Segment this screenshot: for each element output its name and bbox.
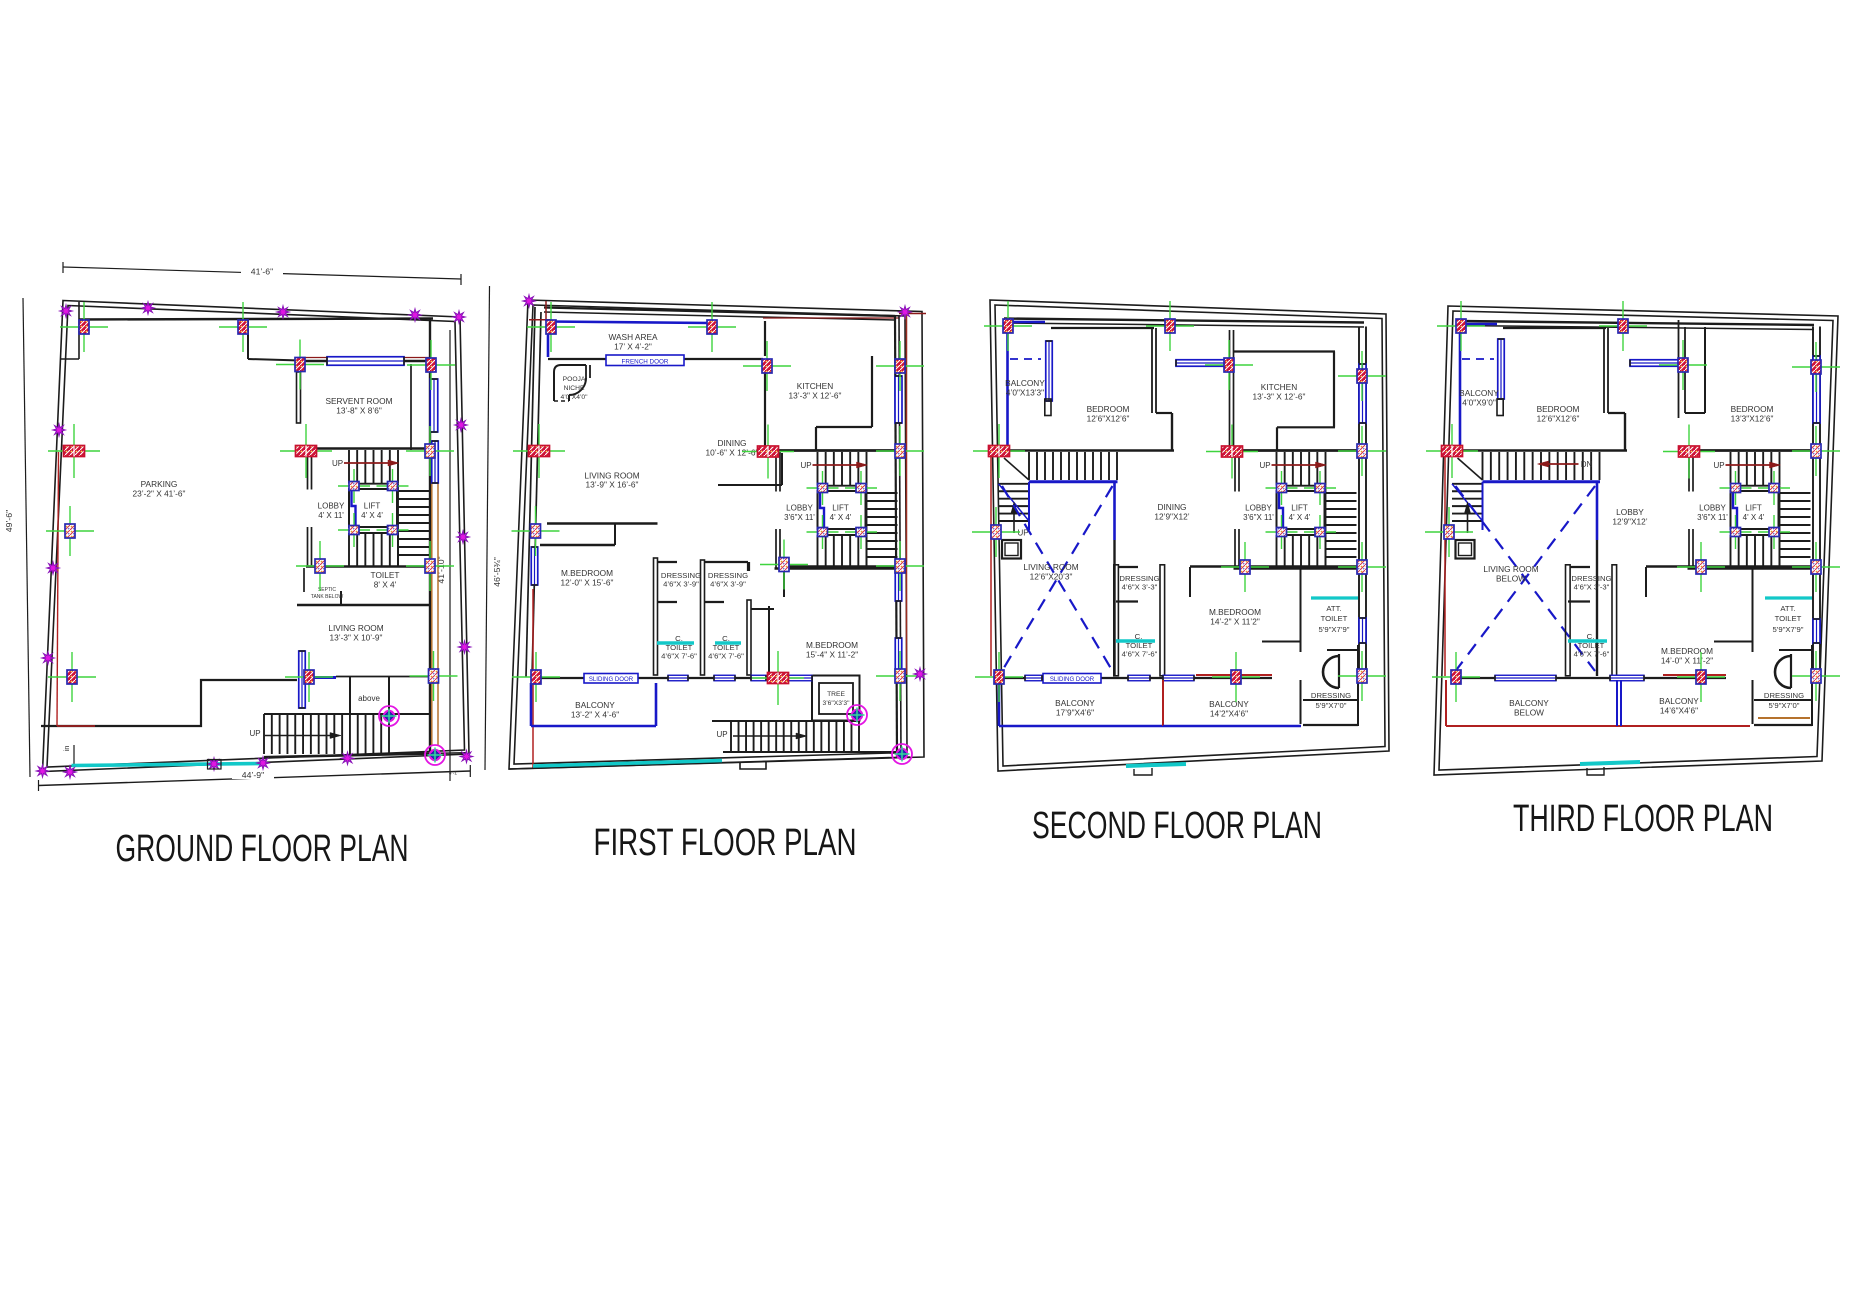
svg-text:UP: UP [1017,529,1028,538]
svg-text:BALCONY: BALCONY [1459,388,1499,398]
svg-text:4’6"X 7’-6": 4’6"X 7’-6" [1122,650,1158,659]
svg-text:KITCHEN: KITCHEN [1261,382,1297,392]
svg-text:4’6"X 7’-6": 4’6"X 7’-6" [661,652,697,661]
svg-text:GROUND FLOOR PLAN: GROUND FLOOR PLAN [116,828,409,870]
svg-text:NICHE: NICHE [564,385,585,392]
svg-text:UP: UP [249,729,260,738]
svg-text:KITCHEN: KITCHEN [797,381,833,391]
svg-text:4' X 4': 4' X 4' [830,513,852,522]
svg-text:12’6"X12’6": 12’6"X12’6" [1537,414,1580,424]
svg-text:DRESSING: DRESSING [1311,691,1351,700]
svg-text:46’-5¾": 46’-5¾" [492,557,502,587]
svg-text:PARKING: PARKING [141,479,178,489]
svg-text:13’-3" X 10’-9": 13’-3" X 10’-9" [330,633,383,643]
svg-text:BEDROOM: BEDROOM [1087,404,1130,414]
svg-text:C.: C. [722,634,730,643]
svg-text:13’-8" X 8’6": 13’-8" X 8’6" [336,406,382,416]
svg-text:C.: C. [675,634,683,643]
svg-text:BALCONY: BALCONY [1055,698,1095,708]
svg-text:5’9"X7’0": 5’9"X7’0" [1315,701,1346,710]
svg-text:12’9"X12’: 12’9"X12’ [1612,517,1647,527]
svg-text:SLIDING DOOR: SLIDING DOOR [1050,676,1095,683]
svg-text:BELOW: BELOW [1496,574,1526,584]
svg-text:3'6"X 11': 3'6"X 11' [784,513,815,522]
svg-text:4’0"X9’0": 4’0"X9’0" [1462,398,1496,408]
svg-text:13’3"X12’6": 13’3"X12’6" [1731,414,1774,424]
svg-text:M.BEDROOM: M.BEDROOM [561,568,613,578]
svg-text:4’6"X 7’-6": 4’6"X 7’-6" [1574,650,1610,659]
svg-text:ATT.: ATT. [1780,604,1795,613]
svg-text:14’-0" X 11’-2": 14’-0" X 11’-2" [1661,656,1713,666]
svg-text:15’-4" X 11’-2": 15’-4" X 11’-2" [806,650,858,660]
svg-text:TOILET: TOILET [371,570,400,580]
svg-text:3'6"X 11': 3'6"X 11' [1697,513,1728,522]
svg-text:5’9"X7’9": 5’9"X7’9" [1318,625,1349,634]
svg-text:UP: UP [332,459,343,468]
svg-text:4’-1: 4’-1 [449,771,457,777]
svg-text:POOJA: POOJA [563,376,586,383]
svg-text:LIVING ROOM: LIVING ROOM [1023,562,1078,572]
svg-text:10’-6" X 12’-6": 10’-6" X 12’-6" [706,448,759,458]
svg-text:12’6"X12’6": 12’6"X12’6" [1087,414,1130,424]
svg-text:13’-3" X 12’-6": 13’-3" X 12’-6" [1253,392,1306,402]
svg-text:DRESSING: DRESSING [1764,691,1804,700]
svg-text:14’-2" X 11’2": 14’-2" X 11’2" [1210,617,1260,627]
svg-text:C.: C. [1135,632,1143,641]
svg-text:13’-9" X 16’-6": 13’-9" X 16’-6" [586,480,639,490]
svg-text:THIRD FLOOR PLAN: THIRD FLOOR PLAN [1513,798,1773,840]
svg-text:DINING: DINING [1157,502,1186,512]
svg-text:SEPTIC: SEPTIC [318,587,336,593]
svg-text:SECOND FLOOR PLAN: SECOND FLOOR PLAN [1032,805,1322,847]
svg-text:LIVING ROOM: LIVING ROOM [1483,564,1538,574]
svg-text:LOBBY: LOBBY [318,502,345,511]
svg-text:UP: UP [800,461,811,470]
svg-text:4’6"X 3’-3": 4’6"X 3’-3" [1122,583,1158,592]
svg-text:TREE: TREE [827,691,845,698]
svg-text:4' X 11': 4' X 11' [318,511,344,520]
svg-text:4’6"X 3’-9": 4’6"X 3’-9" [710,580,746,589]
svg-text:14’6"X4’6": 14’6"X4’6" [1660,706,1698,716]
svg-text:8' X 4': 8' X 4' [374,580,397,590]
svg-text:14’2"X4’6": 14’2"X4’6" [1210,709,1248,719]
svg-text:4’0"X4’0": 4’0"X4’0" [560,394,588,401]
svg-text:LIFT: LIFT [832,504,849,513]
svg-text:5’9"X7’0": 5’9"X7’0" [1768,701,1799,710]
svg-text:ATT.: ATT. [1326,604,1341,613]
svg-text:17’9"X4’6": 17’9"X4’6" [1056,708,1094,718]
svg-text:BALCONY: BALCONY [1005,378,1045,388]
svg-text:LIFT: LIFT [364,502,381,511]
svg-text:3'6"X 11': 3'6"X 11' [1243,513,1274,522]
svg-text:LOBBY: LOBBY [786,504,813,513]
svg-text:4’6"X 7’-6": 4’6"X 7’-6" [708,652,744,661]
svg-text:LOBBY: LOBBY [1616,507,1644,517]
svg-text:in: in [62,746,71,752]
svg-text:12’6"X20’3": 12’6"X20’3" [1030,572,1073,582]
svg-text:BEDROOM: BEDROOM [1731,404,1774,414]
svg-text:17’ X 4’-2": 17’ X 4’-2" [614,342,652,352]
svg-text:LOBBY: LOBBY [1699,504,1726,513]
svg-text:5’9"X7’9": 5’9"X7’9" [1772,625,1803,634]
svg-text:12’9"X12’: 12’9"X12’ [1154,512,1189,522]
svg-text:above: above [358,694,380,703]
svg-text:23’-2" X 41’-6": 23’-2" X 41’-6" [133,489,186,499]
svg-text:BELOW: BELOW [1514,708,1544,718]
svg-text:BEDROOM: BEDROOM [1537,404,1580,414]
svg-text:LOBBY: LOBBY [1245,504,1272,513]
svg-text:WASH AREA: WASH AREA [608,332,657,342]
svg-text:BALCONY: BALCONY [575,700,615,710]
svg-text:BALCONY: BALCONY [1509,698,1549,708]
svg-text:FIRST FLOOR PLAN: FIRST FLOOR PLAN [594,822,857,864]
svg-text:TOILET: TOILET [1321,614,1348,623]
svg-text:BALCONY: BALCONY [1209,699,1249,709]
svg-text:13’-2" X 4’-6": 13’-2" X 4’-6" [571,710,619,720]
svg-text:TOILET: TOILET [1775,614,1802,623]
svg-text:4' X 4': 4' X 4' [1289,513,1311,522]
svg-text:DINING: DINING [717,438,746,448]
svg-text:SERVENT ROOM: SERVENT ROOM [325,396,392,406]
svg-text:44’-9": 44’-9" [242,770,264,780]
svg-text:13’-3" X 12’-6": 13’-3" X 12’-6" [789,391,842,401]
svg-text:4' X 4': 4' X 4' [361,511,383,520]
svg-text:12’-0" X 15’-6": 12’-0" X 15’-6" [561,578,614,588]
svg-text:C.: C. [1587,632,1595,641]
svg-text:UP: UP [1713,461,1724,470]
svg-text:LIFT: LIFT [1291,504,1308,513]
svg-text:LIVING ROOM: LIVING ROOM [328,623,383,633]
svg-text:M.BEDROOM: M.BEDROOM [1209,607,1261,617]
svg-text:4’6"X 3’-3": 4’6"X 3’-3" [1574,583,1610,592]
svg-text:BALCONY: BALCONY [1659,696,1699,706]
svg-text:41’-6": 41’-6" [251,267,273,277]
svg-text:FRENCH DOOR: FRENCH DOOR [622,359,669,366]
svg-text:4’0"X13’3": 4’0"X13’3" [1006,388,1044,398]
svg-text:LIFT: LIFT [1745,504,1762,513]
svg-text:M.BEDROOM: M.BEDROOM [1661,646,1713,656]
svg-text:M.BEDROOM: M.BEDROOM [806,640,858,650]
svg-text:TANK BELOW: TANK BELOW [311,594,344,600]
svg-text:4' X 4': 4' X 4' [1743,513,1765,522]
svg-text:3’6"X3’3": 3’6"X3’3" [822,700,850,707]
svg-text:UP: UP [1259,461,1270,470]
svg-text:49’-6": 49’-6" [4,510,14,532]
svg-text:UP: UP [716,730,727,739]
svg-text:SLIDING DOOR: SLIDING DOOR [589,676,634,683]
svg-text:4’6"X 3’-9": 4’6"X 3’-9" [663,580,699,589]
svg-text:DN: DN [1581,460,1593,469]
